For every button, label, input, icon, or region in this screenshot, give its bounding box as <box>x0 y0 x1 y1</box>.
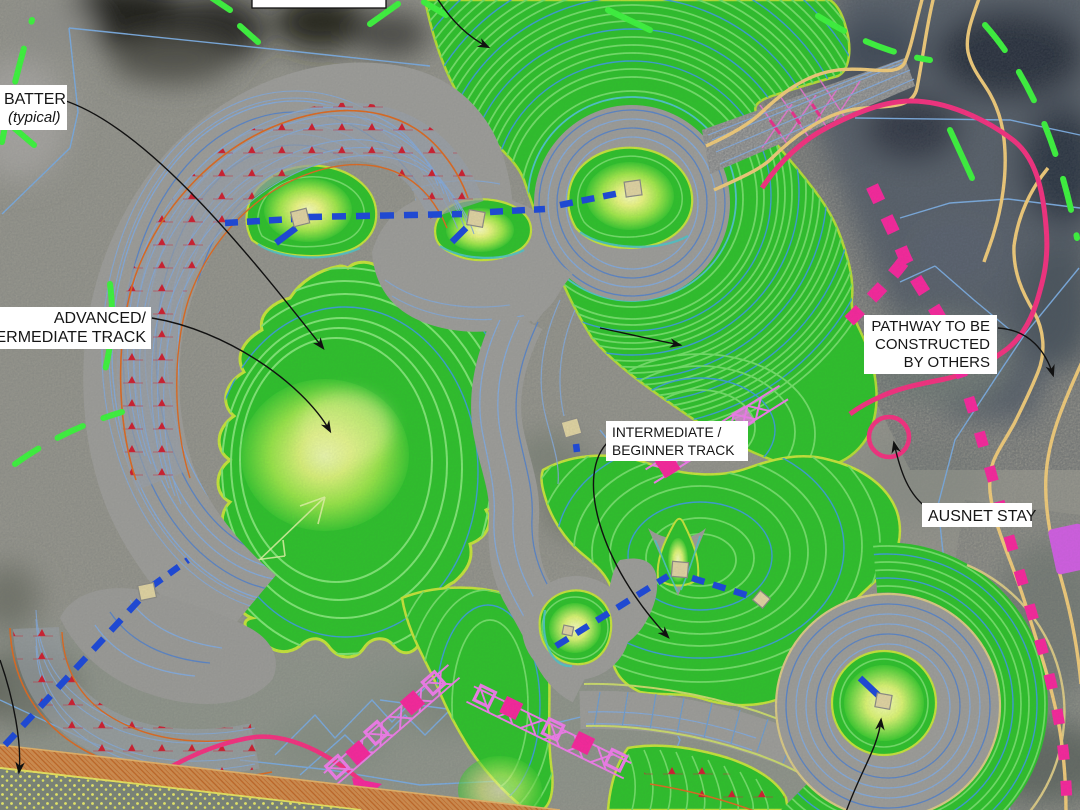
svg-text:PATHWAY TO BE: PATHWAY TO BE <box>871 318 990 335</box>
svg-text:(typical): (typical) <box>8 109 61 126</box>
svg-text:AUSNET STAY: AUSNET STAY <box>928 508 1037 525</box>
svg-text:ADVANCED/: ADVANCED/ <box>54 310 147 327</box>
svg-text:INTERMEDIATE /: INTERMEDIATE / <box>612 425 722 440</box>
svg-text:BATTER: BATTER <box>4 91 66 108</box>
svg-text:CONSTRUCTED: CONSTRUCTED <box>875 336 990 353</box>
svg-text:BY OTHERS: BY OTHERS <box>904 354 990 371</box>
svg-text:INTERMEDIATE TRACK: INTERMEDIATE TRACK <box>0 329 146 346</box>
svg-text:BEGINNER TRACK: BEGINNER TRACK <box>612 443 735 458</box>
